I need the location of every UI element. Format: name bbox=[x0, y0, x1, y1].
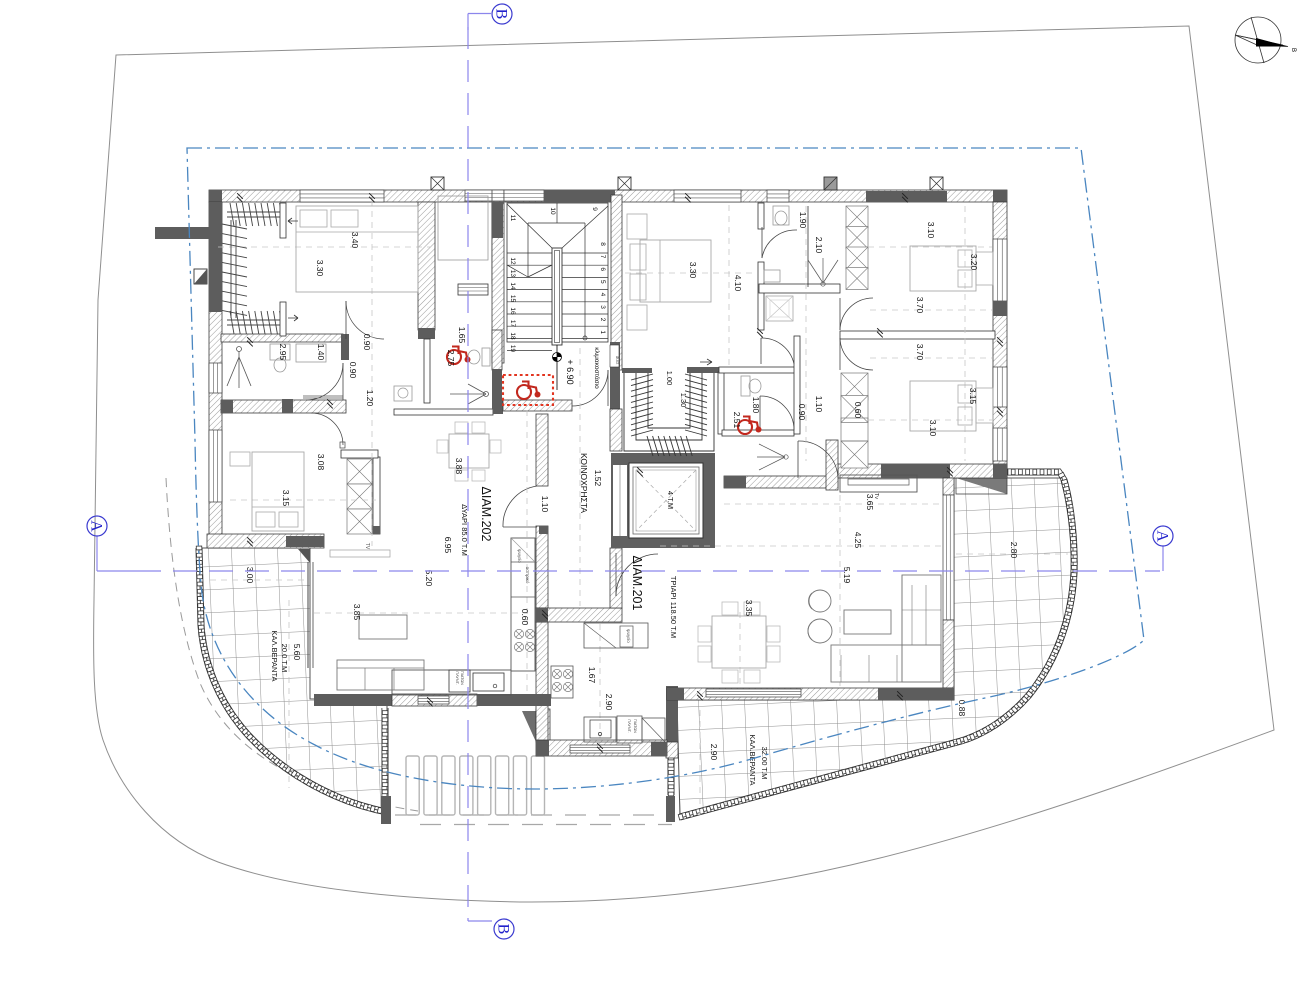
svg-text:3.40: 3.40 bbox=[350, 232, 360, 249]
svg-text:4: 4 bbox=[599, 293, 606, 297]
svg-text:3.35: 3.35 bbox=[744, 600, 754, 617]
svg-text:5.19: 5.19 bbox=[842, 567, 852, 584]
svg-text:+ 6.90: + 6.90 bbox=[565, 359, 575, 384]
svg-text:ΠΛΥΝΤ.: ΠΛΥΝΤ. bbox=[455, 671, 459, 684]
svg-text:TV: TV bbox=[364, 543, 370, 550]
svg-text:10: 10 bbox=[549, 207, 556, 215]
svg-text:1.90: 1.90 bbox=[798, 212, 808, 229]
svg-text:12: 12 bbox=[509, 257, 516, 265]
svg-text:0.90: 0.90 bbox=[362, 334, 372, 351]
svg-text:1.67: 1.67 bbox=[587, 667, 597, 684]
svg-text:2.80: 2.80 bbox=[1009, 542, 1019, 559]
svg-text:5.60: 5.60 bbox=[292, 644, 302, 661]
svg-text:3.10: 3.10 bbox=[928, 420, 938, 437]
svg-text:6.95: 6.95 bbox=[443, 537, 453, 554]
svg-text:2.90: 2.90 bbox=[709, 744, 719, 761]
svg-text:3.65: 3.65 bbox=[865, 494, 875, 511]
svg-text:1.30: 1.30 bbox=[679, 393, 688, 408]
svg-text:3.85: 3.85 bbox=[352, 604, 362, 621]
svg-text:3.15: 3.15 bbox=[281, 490, 291, 507]
svg-text:ΠΙΑΤΩΝ: ΠΙΑΤΩΝ bbox=[633, 719, 637, 733]
svg-text:3.10: 3.10 bbox=[926, 222, 936, 239]
svg-text:3.70: 3.70 bbox=[915, 344, 925, 361]
svg-text:32.00 Τ.Μ: 32.00 Τ.Μ bbox=[760, 747, 769, 780]
svg-text:3.30: 3.30 bbox=[315, 260, 325, 277]
svg-text:ΚΟΙΝΟΧΡΗΣΤΑ: ΚΟΙΝΟΧΡΗΣΤΑ bbox=[579, 453, 589, 513]
svg-text:1: 1 bbox=[599, 330, 606, 334]
svg-text:duct: duct bbox=[615, 356, 620, 365]
svg-text:2.95: 2.95 bbox=[278, 344, 288, 361]
svg-text:18: 18 bbox=[509, 332, 516, 340]
svg-text:19: 19 bbox=[509, 345, 516, 353]
svg-text:ψυγείο: ψυγείο bbox=[626, 629, 631, 643]
svg-text:13: 13 bbox=[509, 270, 516, 278]
svg-text:6: 6 bbox=[599, 267, 606, 271]
svg-text:4 Τ.Μ: 4 Τ.Μ bbox=[666, 491, 675, 509]
svg-text:8: 8 bbox=[599, 242, 606, 246]
svg-text:0.60: 0.60 bbox=[853, 402, 863, 419]
svg-text:3.88: 3.88 bbox=[454, 458, 464, 475]
svg-text:17: 17 bbox=[509, 320, 516, 328]
svg-text:ΠΙΑΤΩΝ: ΠΙΑΤΩΝ bbox=[460, 671, 464, 685]
svg-text:ψυγείο: ψυγείο bbox=[517, 549, 522, 563]
svg-text:1.10: 1.10 bbox=[814, 396, 824, 413]
svg-text:4.25: 4.25 bbox=[853, 532, 863, 549]
svg-text:2: 2 bbox=[599, 318, 606, 322]
svg-text:3.20: 3.20 bbox=[969, 254, 979, 271]
svg-text:A: A bbox=[1154, 530, 1171, 542]
svg-text:ΚΑΛ.ΒΕΡΑΝΤΑ: ΚΑΛ.ΒΕΡΑΝΤΑ bbox=[270, 631, 279, 682]
svg-text:ΔΙΑΜ.202: ΔΙΑΜ.202 bbox=[479, 487, 493, 542]
svg-text:3.00: 3.00 bbox=[245, 567, 255, 584]
svg-text:0.90: 0.90 bbox=[348, 362, 358, 379]
svg-text:2.51: 2.51 bbox=[732, 412, 742, 429]
svg-text:1.52: 1.52 bbox=[593, 470, 603, 487]
svg-text:3.08: 3.08 bbox=[316, 454, 326, 471]
svg-text:7: 7 bbox=[599, 255, 606, 259]
svg-text:3.30: 3.30 bbox=[688, 262, 698, 279]
svg-text:4.10: 4.10 bbox=[733, 275, 743, 292]
svg-text:ασπρικό: ασπρικό bbox=[525, 567, 531, 584]
svg-text:9: 9 bbox=[591, 207, 598, 211]
svg-text:1.40: 1.40 bbox=[316, 344, 326, 361]
svg-text:0.90: 0.90 bbox=[797, 404, 807, 421]
svg-text:1.20: 1.20 bbox=[365, 390, 375, 407]
svg-text:3.70: 3.70 bbox=[915, 297, 925, 314]
svg-text:B: B bbox=[1290, 48, 1296, 52]
svg-text:11: 11 bbox=[509, 215, 516, 222]
svg-text:3: 3 bbox=[599, 305, 606, 309]
svg-text:1.80: 1.80 bbox=[751, 397, 761, 414]
svg-text:15: 15 bbox=[509, 295, 516, 303]
svg-text:2.90: 2.90 bbox=[604, 694, 614, 711]
svg-text:16: 16 bbox=[509, 307, 516, 315]
svg-text:1.65: 1.65 bbox=[457, 327, 467, 344]
svg-text:14: 14 bbox=[509, 282, 516, 290]
svg-text:ΔΙΑΜ.201: ΔΙΑΜ.201 bbox=[630, 556, 644, 611]
svg-text:5: 5 bbox=[599, 280, 606, 284]
svg-text:κλιμακοστάσιο: κλιμακοστάσιο bbox=[593, 347, 601, 389]
svg-text:0.60: 0.60 bbox=[520, 609, 530, 626]
svg-text:B: B bbox=[493, 9, 510, 20]
svg-text:3.15: 3.15 bbox=[968, 388, 978, 405]
svg-text:2.10: 2.10 bbox=[814, 237, 824, 254]
svg-text:B: B bbox=[495, 924, 512, 935]
svg-text:1.00: 1.00 bbox=[665, 371, 674, 386]
svg-text:ΤΡΙΑΡΙ 118.50 Τ.Μ: ΤΡΙΑΡΙ 118.50 Τ.Μ bbox=[669, 576, 678, 638]
svg-text:2.75: 2.75 bbox=[446, 350, 456, 367]
svg-text:5.20: 5.20 bbox=[424, 570, 434, 587]
svg-text:A: A bbox=[88, 520, 105, 532]
svg-text:ΠΛΥΝΤ.: ΠΛΥΝΤ. bbox=[627, 719, 631, 732]
svg-text:20.0 Τ.Μ: 20.0 Τ.Μ bbox=[280, 644, 289, 673]
svg-text:1.10: 1.10 bbox=[540, 496, 550, 513]
